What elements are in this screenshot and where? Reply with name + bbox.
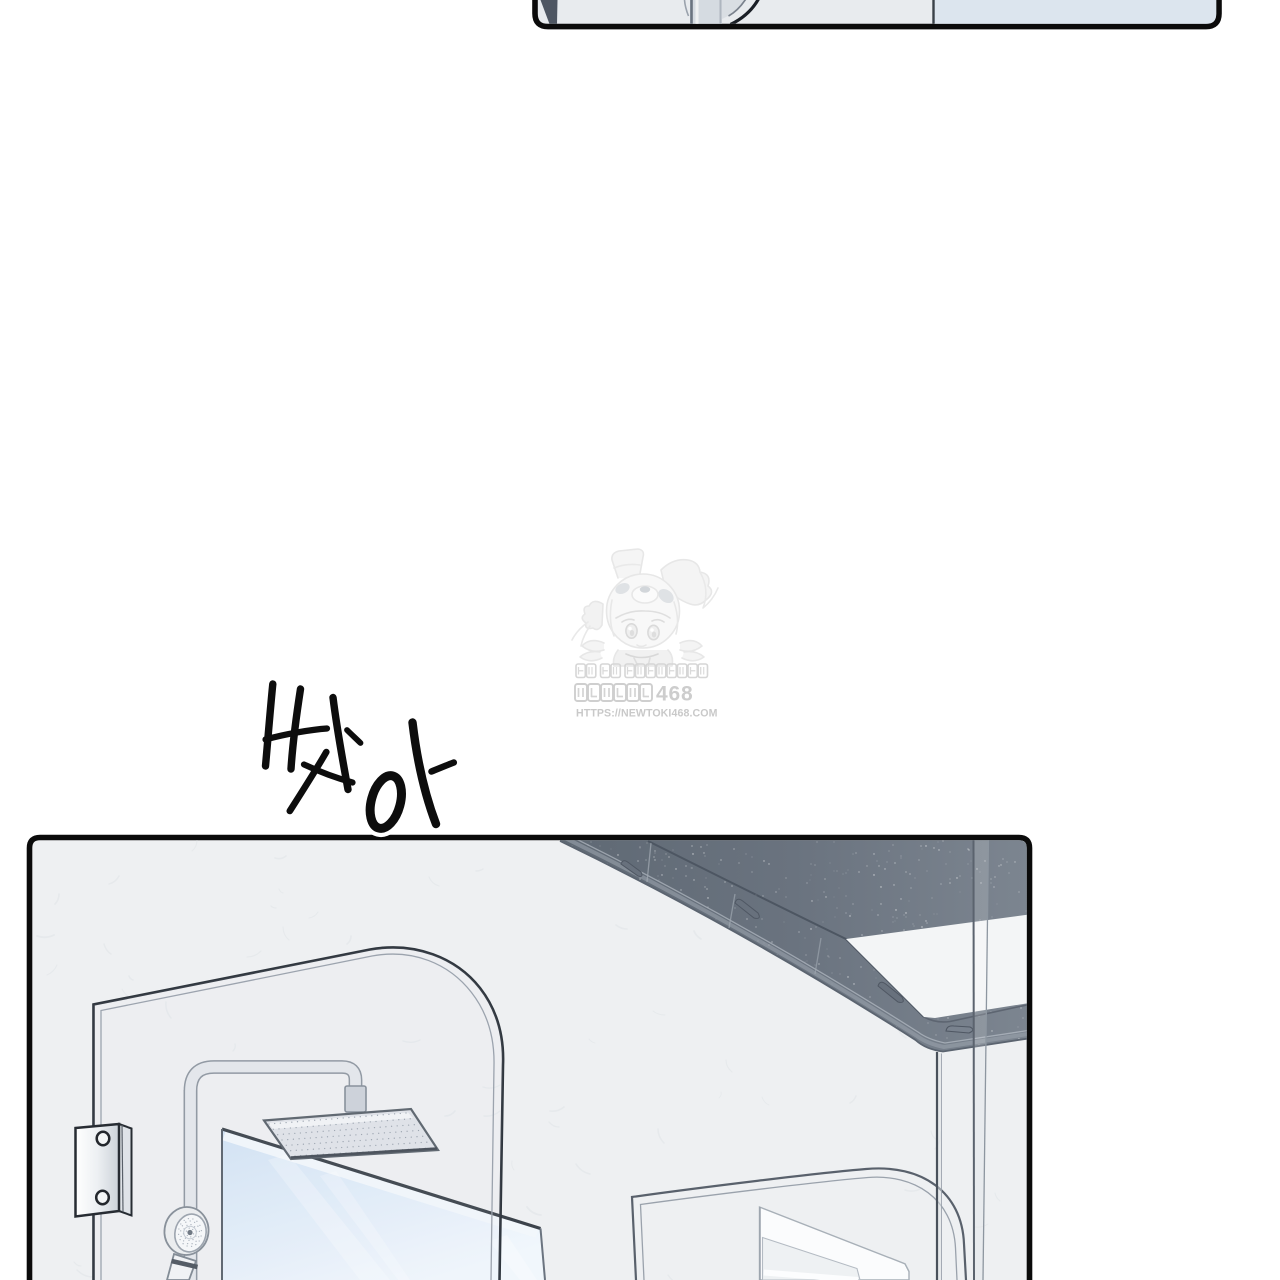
svg-text:468: 468 (656, 683, 693, 706)
svg-text:HTTPS://NEWTOKI468.COM: HTTPS://NEWTOKI468.COM (576, 708, 718, 720)
